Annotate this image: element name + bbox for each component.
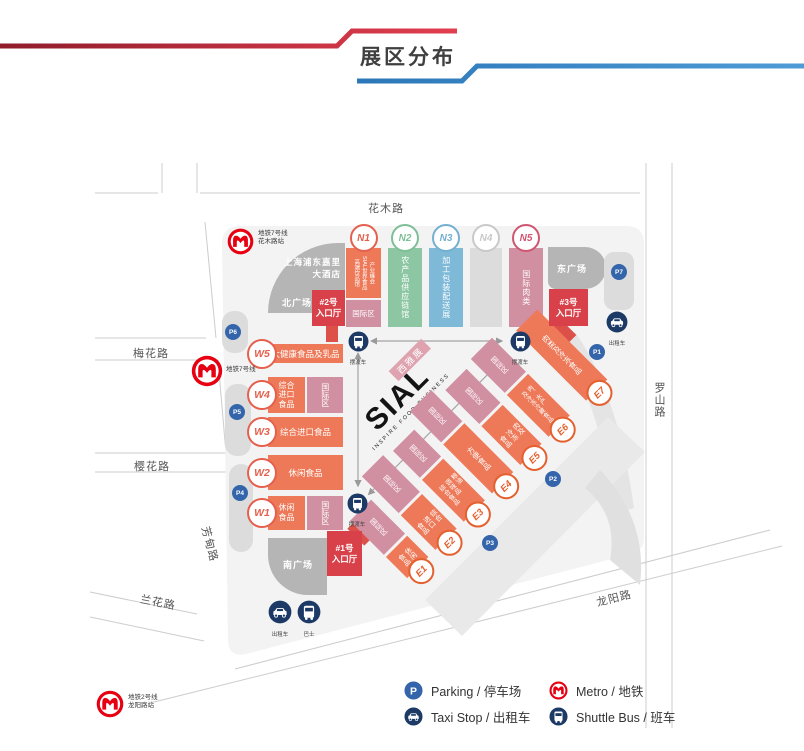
parking-pad-p7 <box>604 252 634 310</box>
entrance-3-hall: #3号 入口厅 <box>549 289 588 326</box>
legend-label-taxi: Taxi Stop / 出租车 <box>431 707 530 726</box>
metro-line2-longyang-station-label: 地铁2号线 龙阳路站 <box>128 694 158 711</box>
hall-e5-intl-label: 国际区 <box>463 386 484 407</box>
hall-e3-intl-label: 国际区 <box>407 443 428 464</box>
hall-n1-label: 产业峰会 <box>368 262 375 284</box>
hall-circle-w3: W3 <box>247 417 277 447</box>
street-yinghua-rd: 樱花路 <box>134 458 170 474</box>
hall-w5-block: 大健康食品及乳品 <box>268 344 343 363</box>
hall-w3-block: 综合进口食品 <box>268 417 343 447</box>
shuttle-stop-label: 摆渡车 <box>503 358 538 366</box>
taxi-stop-label: 出租车 <box>599 339 635 347</box>
hall-n2-label: 农产品供应链馆 <box>400 256 410 319</box>
street-huamu-rd: 花木路 <box>368 200 404 216</box>
legend-item-taxi: Taxi Stop / 出租车 <box>404 707 530 726</box>
legend-item-parking: PParking / 停车场 <box>404 681 521 700</box>
hall-e5-label: 肉及 冷冻 食品 <box>497 420 526 449</box>
taxi-icon <box>606 311 628 333</box>
parking-marker-p2: P2 <box>545 471 561 487</box>
hall-n1-block: 高端饮品馆SIAL世界食品产业峰会 <box>346 248 381 298</box>
hall-w4-intl-label: 国际区 <box>320 383 330 407</box>
hall-w4-label: 综合 进口 食品 <box>279 381 295 410</box>
metro-line7-huamu-station-label: 地铁7号线 花木路站 <box>258 230 288 247</box>
metro-line7-label: 地铁7号线 <box>226 366 256 374</box>
hall-circle-n2: N2 <box>391 224 419 252</box>
legend-item-metro: Metro / 地铁 <box>549 681 643 700</box>
entrance-2-connector <box>326 326 338 342</box>
legend-label-metro: Metro / 地铁 <box>576 681 643 700</box>
svg-text:P: P <box>410 686 417 697</box>
hall-n3-block: 加工包装配送展 <box>429 248 463 327</box>
hall-w1-label: 休闲 食品 <box>279 503 295 522</box>
entrance-1-hall: #1号 入口厅 <box>327 531 362 576</box>
south-plaza-label: 南广场 <box>283 558 313 571</box>
shuttle-icon <box>510 331 531 352</box>
metro-icon <box>227 228 254 255</box>
bus-stop: 巴士 <box>290 600 328 638</box>
hall-e4-label: 方便食品 <box>464 444 492 472</box>
metro-icon <box>96 690 124 718</box>
bus-stop-label: 巴士 <box>290 630 328 638</box>
hall-circle-w4: W4 <box>247 380 277 410</box>
shuttle-stop: 摆渡车 <box>340 493 375 528</box>
shuttle-stop-label: 摆渡车 <box>340 520 375 528</box>
parking-marker-p5: P5 <box>229 404 245 420</box>
hall-e2-label: 综合 进口 食品 <box>414 507 443 536</box>
entrance-2-hall: #2号 入口厅 <box>312 290 345 326</box>
legend-label-parking: Parking / 停车场 <box>431 681 521 700</box>
parking-icon: P <box>404 681 423 700</box>
bus-icon <box>297 600 321 624</box>
legend-item-shuttle: Shuttle Bus / 班车 <box>549 707 675 726</box>
hall-circle-n3: N3 <box>432 224 460 252</box>
expo-map-page: 展区分布 花木路 梅花路 樱花路 兰花路 芳甸路 罗山路 龙阳路 上海浦东嘉里 … <box>0 0 804 751</box>
hall-e4-intl-label: 国际区 <box>426 406 447 427</box>
taxi-stop: 出租车 <box>599 311 635 347</box>
metro-icon <box>191 355 223 387</box>
hall-circle-w2: W2 <box>247 458 277 488</box>
hall-circle-w1: W1 <box>247 498 277 528</box>
hall-e7-label: 肉类及冷冻食品 <box>540 333 584 377</box>
parking-marker-p4: P4 <box>232 485 248 501</box>
metro-line7-huamu-station <box>227 228 254 255</box>
hall-n1-intl-label: 国际区 <box>352 308 375 319</box>
parking-marker-p6: P6 <box>225 324 241 340</box>
parking-marker-p7: P7 <box>611 264 627 280</box>
hotel-label: 上海浦东嘉里 大酒店 <box>279 256 341 280</box>
shuttle-icon <box>348 331 369 352</box>
hall-n3-label: 加工包装配送展 <box>441 256 451 319</box>
taxi-icon <box>268 600 292 624</box>
shuttle-stop: 摆渡车 <box>503 331 538 366</box>
shuttle-stop: 摆渡车 <box>341 331 376 366</box>
hall-n1-label: SIAL世界食品 <box>360 256 367 290</box>
hall-n1-intl-block: 国际区 <box>346 300 381 327</box>
hall-circle-w5: W5 <box>247 339 277 369</box>
hall-w5-label: 大健康食品及乳品 <box>271 348 339 360</box>
street-luoshan-rd: 罗山路 <box>651 382 667 418</box>
taxi-icon <box>404 707 423 726</box>
hall-w3-label: 综合进口食品 <box>280 426 331 438</box>
east-plaza-label: 东广场 <box>557 262 587 275</box>
hall-circle-n1: N1 <box>350 224 378 252</box>
legend-label-shuttle: Shuttle Bus / 班车 <box>576 707 675 726</box>
street-meihua-rd: 梅花路 <box>133 345 169 361</box>
hall-n1-label: 高端饮品馆 <box>353 259 360 287</box>
north-plaza-label: 北广场 <box>282 296 312 309</box>
metro-line7 <box>191 355 223 387</box>
shuttle-stop-label: 摆渡车 <box>341 358 376 366</box>
hall-circle-n4: N4 <box>472 224 500 252</box>
hall-w4-intl-block: 国际区 <box>307 377 343 413</box>
hall-e2-intl-label: 国际区 <box>381 474 402 495</box>
metro-icon <box>549 681 568 700</box>
hall-n2-block: 农产品供应链馆 <box>388 248 422 327</box>
hall-e3-label: 粮油 调味品 综合食品 <box>435 472 471 508</box>
shuttle-icon <box>549 707 568 726</box>
page-title: 展区分布 <box>352 41 464 71</box>
shuttle-icon <box>347 493 368 514</box>
hall-circle-n5: N5 <box>512 224 540 252</box>
metro-line2-longyang-station <box>96 690 124 718</box>
hall-w1-intl-label: 国际区 <box>320 501 330 525</box>
parking-marker-p3: P3 <box>482 535 498 551</box>
